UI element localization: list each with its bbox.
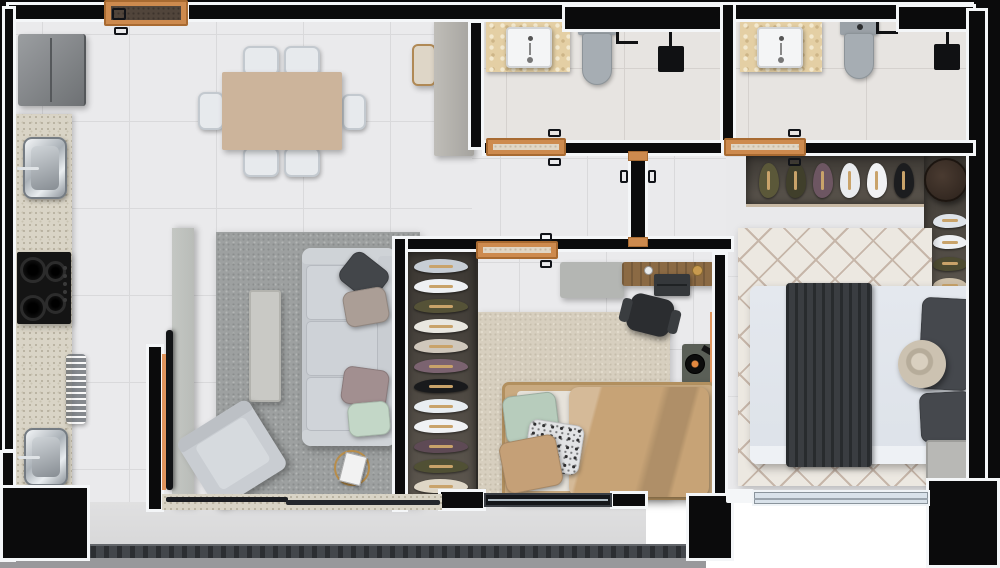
hanging-garment [411,339,471,353]
hanger [429,465,453,468]
hall-door-wood-cap [628,151,648,161]
bathroom2-toilet [840,20,878,80]
bathroom2-door [724,138,806,156]
hanger [429,285,453,288]
hanger [767,171,770,190]
wall-office-north [392,236,734,252]
hanger [429,445,453,448]
hanger [821,171,824,190]
burner [45,261,66,282]
hanging-garment [865,162,889,199]
faucet [17,167,39,170]
hanger [794,171,797,190]
dish-rack [66,354,86,424]
burner [20,257,46,283]
daybed-pillow [498,433,565,495]
hall-door-leaf [628,155,648,243]
hanging-garment [411,359,471,373]
door-handle [788,158,801,166]
hanger [429,345,453,348]
hanging-garment [757,162,781,199]
shower-head [658,46,684,72]
balcony-ledge [0,558,706,568]
round-dressing-table [924,158,968,202]
hanging-garment [811,162,835,199]
floor-plan-render [0,0,1000,568]
wall-right [966,8,988,490]
dining-table [222,72,342,150]
side-table [334,448,372,490]
partition-wood-accent [162,354,166,490]
hanging-garment [411,439,471,453]
tv [166,330,173,490]
hanger [429,425,453,428]
door-handle [540,260,552,268]
daybed-duvet [569,387,709,497]
coffee-table [249,290,281,402]
hanging-garment [784,162,808,199]
hanging-garment [411,279,471,293]
hanging-garment [411,419,471,433]
hanging-garment [838,162,862,199]
wall-step-bathroom1 [562,4,724,32]
hanging-garment [931,257,969,271]
hall-door-wood-cap [628,237,648,247]
wall-office-west [392,236,408,512]
cooktop [17,252,71,324]
bathroom1-sink [506,27,552,68]
refrigerator [18,34,86,106]
hanger [942,241,957,244]
dining-chair [342,94,366,130]
wall-between-bathrooms [720,2,736,148]
hanging-garment [411,379,471,393]
bathroom2-sink [757,27,803,68]
vinyl-record [685,354,705,374]
hanging-garment [411,259,471,273]
desk-cup [692,265,703,276]
wall-southeast-corner [926,478,1000,568]
wall-step-bathroom2 [896,4,976,32]
kitchen-sink-top [23,137,67,199]
hanging-garment [892,162,916,199]
wall-top-left [6,2,108,22]
hanger [429,265,453,268]
office-wardrobe [406,252,478,500]
shower-head [934,44,960,70]
burner [20,295,46,321]
hanging-garment [411,399,471,413]
sofa-pillow [341,285,391,328]
hanger [942,219,957,222]
towel-hook [876,22,898,34]
hanger [902,171,905,190]
hanger [942,262,957,265]
office-window [484,493,612,507]
bathroom1-door [486,138,566,156]
door-handle [788,129,801,137]
knot-pouf [898,340,946,388]
door-handle [620,170,628,183]
faucet [18,456,40,459]
wall-south-piece-1 [438,489,486,511]
wall-south-column [686,493,734,561]
hanging-garment [931,214,969,228]
refrigerator-door-split [50,38,52,102]
hanger [429,485,453,488]
bed-runner [786,283,872,467]
hanging-garment [411,319,471,333]
door-handle [548,158,561,166]
entry-door-handle [112,8,126,20]
towel-hook [616,30,638,44]
window-sill-lining [726,489,754,503]
hanging-garment [411,459,471,473]
floor-hallway [472,146,730,246]
entry-door-handle [114,27,128,35]
bed [750,286,976,464]
hanger [429,405,453,408]
entry-bench [412,44,436,86]
hanger [429,325,453,328]
sliding-door-rail [166,497,288,502]
dining-chair [243,147,279,177]
wall-southwest-2 [0,485,90,561]
wall-south-piece-2 [610,491,648,509]
hanging-garment [931,235,969,249]
sofa-pillow [347,400,392,438]
hanger [875,171,878,190]
kitchen-sink-bottom [24,428,68,486]
door-handle [648,170,656,183]
desk [560,262,624,298]
sliding-door-rail [286,500,440,505]
desk-cup [644,266,653,275]
dining-chair [284,147,320,177]
burner [45,293,66,314]
hanger [429,305,453,308]
bedroom-closet-shelf-items [750,158,922,203]
hanger [429,385,453,388]
office-door [476,241,558,259]
bedroom-window [752,490,930,506]
wall-dining-bathroom1 [468,20,484,150]
hanging-garment [411,299,471,313]
hanger [848,171,851,190]
wall-left [2,6,16,452]
door-handle [540,233,552,241]
dining-chair [198,92,224,130]
wall-office-bedroom [712,252,728,510]
hanger [429,365,453,368]
door-handle [548,129,561,137]
